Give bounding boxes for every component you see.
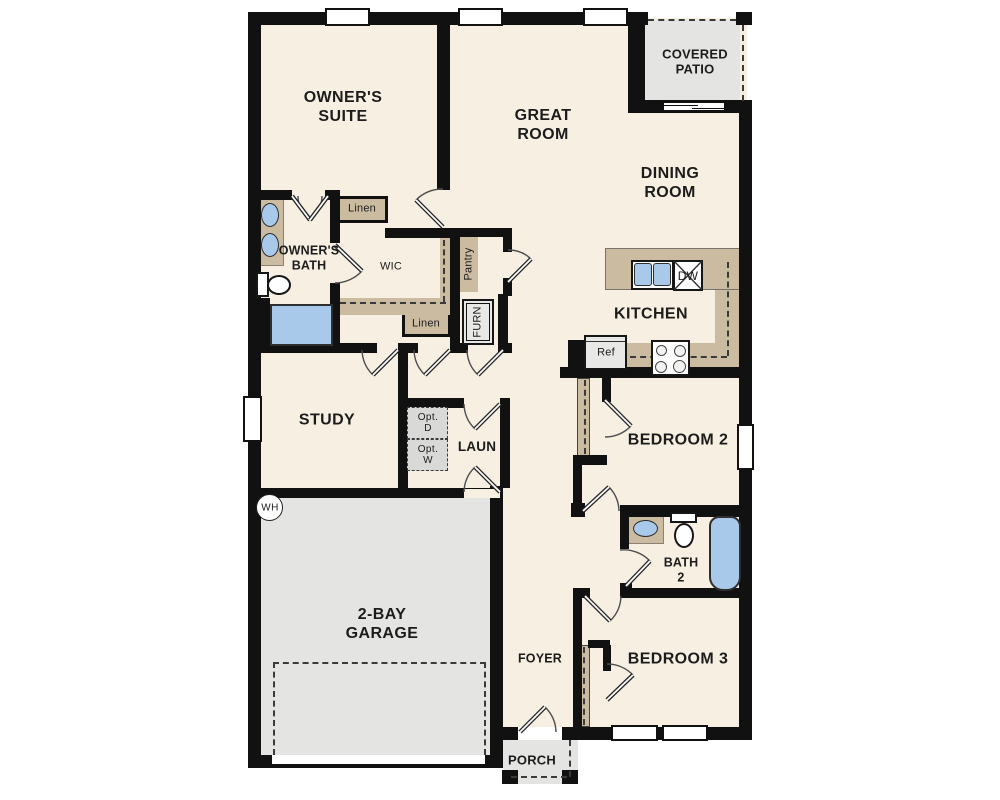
wall <box>255 298 270 348</box>
toilet-tank <box>670 512 697 523</box>
label-opt-washer: Opt. W <box>418 444 439 466</box>
wall <box>736 12 752 25</box>
wall <box>603 645 611 671</box>
sliding-door <box>662 101 726 112</box>
label-water-heater: WH <box>261 503 278 514</box>
label-furnace: FURN <box>472 306 485 337</box>
garage-door-dashed-zone <box>273 662 486 755</box>
label-linen-upper: Linen <box>348 203 376 216</box>
label-dishwasher: DW <box>678 269 698 283</box>
sliding-door-panel-line <box>664 105 698 106</box>
wall <box>437 12 450 190</box>
wall <box>385 228 453 238</box>
kitchen-sink-basin <box>653 263 671 286</box>
wall <box>498 343 512 353</box>
wall <box>620 505 629 549</box>
floor-plan: OWNER'S SUITE GREAT ROOM COVERED PATIO D… <box>0 0 1000 800</box>
sliding-door-panel-line <box>692 108 724 109</box>
wall <box>450 228 460 353</box>
room-label-owners-suite: OWNER'S SUITE <box>304 89 383 127</box>
toilet-bowl <box>267 275 291 295</box>
wall <box>602 375 611 402</box>
window <box>662 725 708 741</box>
window <box>325 8 370 26</box>
patio-dashed-edge <box>648 19 736 21</box>
room-label-wic: WIC <box>380 261 402 274</box>
room-label-bath2: BATH 2 <box>664 555 699 585</box>
room-label-dining-room: DINING ROOM <box>641 165 699 203</box>
door-opening <box>464 489 500 498</box>
room-label-foyer: FOYER <box>518 652 562 667</box>
kitchen-sink-basin <box>634 263 652 286</box>
room-label-covered-patio: COVERED PATIO <box>662 47 728 78</box>
wall <box>503 228 512 252</box>
room-label-owners-bath: OWNER'S BATH <box>279 243 340 273</box>
wall <box>571 503 585 517</box>
label-opt-dryer: Opt. D <box>418 412 439 434</box>
wall <box>573 588 582 727</box>
stove-burner <box>673 360 686 373</box>
bathtub <box>270 304 333 346</box>
wall <box>573 455 582 510</box>
room-label-bedroom2: BEDROOM 2 <box>628 432 729 451</box>
bedroom2-closet-rod <box>584 380 586 454</box>
wall <box>739 103 752 740</box>
room-label-garage: 2-BAY GARAGE <box>346 606 419 644</box>
sink <box>633 520 658 537</box>
label-linen-lower: Linen <box>412 318 440 331</box>
sink <box>261 233 279 257</box>
wic-shelf-bottom <box>337 298 453 315</box>
porch-dashed-edge <box>569 740 571 777</box>
stove-burner <box>655 361 667 373</box>
wall <box>248 486 261 768</box>
bathtub <box>709 516 741 591</box>
wall <box>490 486 503 768</box>
wall <box>628 12 645 113</box>
wall <box>255 190 292 200</box>
room-label-study: STUDY <box>299 412 355 431</box>
toilet-bowl <box>674 523 694 548</box>
kitchen-counter-dash-v <box>727 262 729 356</box>
label-refrigerator: Ref <box>597 347 615 360</box>
garage-door-opening <box>272 755 485 764</box>
wic-shelf-rod-line2 <box>340 302 446 304</box>
room-label-kitchen: KITCHEN <box>614 306 688 325</box>
front-door-opening <box>518 727 562 740</box>
stove-burner <box>674 345 686 357</box>
wall <box>500 398 510 488</box>
window <box>611 725 658 741</box>
window <box>583 8 628 26</box>
window <box>458 8 503 26</box>
bedroom3-closet-rod <box>583 647 585 725</box>
refrigerator-door-line <box>586 341 625 342</box>
stove-burner <box>656 345 667 356</box>
label-pantry: Pantry <box>463 248 476 281</box>
room-label-bedroom3: BEDROOM 3 <box>628 651 729 670</box>
room-label-porch: PORCH <box>508 752 556 767</box>
porch-dashed-edge <box>511 776 567 778</box>
patio-dashed-edge <box>742 25 744 101</box>
window <box>243 396 262 442</box>
sink <box>261 203 279 227</box>
window <box>737 424 754 470</box>
wic-shelf-rod-line <box>443 240 445 302</box>
room-label-laundry: LAUN <box>458 439 496 455</box>
room-label-great-room: GREAT ROOM <box>515 107 572 145</box>
